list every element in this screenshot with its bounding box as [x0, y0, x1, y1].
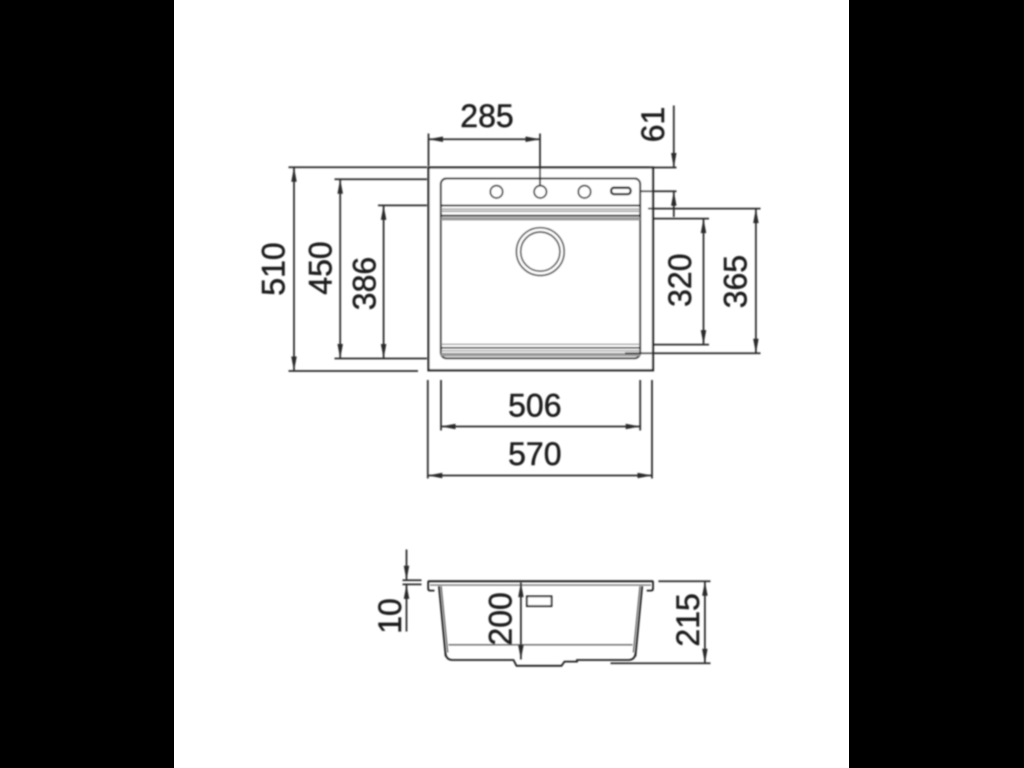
svg-text:570: 570 — [508, 436, 561, 472]
svg-text:61: 61 — [635, 107, 671, 143]
svg-text:320: 320 — [662, 254, 698, 307]
svg-text:10: 10 — [372, 598, 408, 634]
svg-text:215: 215 — [670, 593, 706, 646]
svg-text:200: 200 — [482, 592, 518, 645]
svg-text:386: 386 — [347, 257, 383, 310]
svg-text:365: 365 — [718, 255, 754, 308]
svg-text:285: 285 — [460, 98, 513, 134]
svg-text:510: 510 — [256, 242, 292, 295]
svg-text:506: 506 — [508, 388, 561, 424]
svg-text:450: 450 — [303, 241, 339, 294]
